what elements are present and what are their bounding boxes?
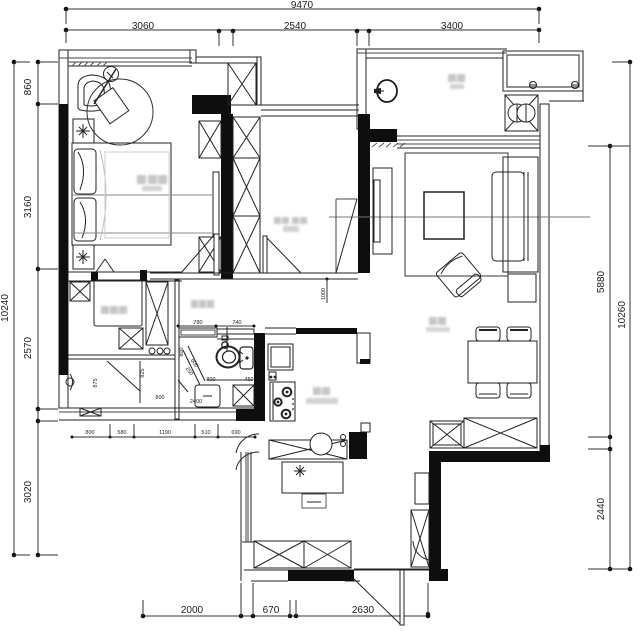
svg-text:2400: 2400 <box>190 399 202 405</box>
svg-text:5880: 5880 <box>596 270 607 293</box>
svg-text:1000: 1000 <box>321 288 327 300</box>
svg-text:800: 800 <box>85 430 94 436</box>
svg-text:670: 670 <box>263 605 280 616</box>
svg-text:10240: 10240 <box>0 294 11 322</box>
svg-text:10260: 10260 <box>617 301 628 329</box>
svg-text:2630: 2630 <box>352 605 375 616</box>
svg-text:2570: 2570 <box>23 336 34 359</box>
svg-text:2540: 2540 <box>284 21 307 32</box>
svg-text:3020: 3020 <box>23 480 34 503</box>
svg-text:3400: 3400 <box>441 21 464 32</box>
svg-text:1190: 1190 <box>159 430 171 436</box>
svg-text:3060: 3060 <box>132 21 155 32</box>
svg-text:2000: 2000 <box>181 605 204 616</box>
svg-text:9470: 9470 <box>291 0 314 11</box>
svg-text:860: 860 <box>23 78 34 95</box>
svg-text:580: 580 <box>117 430 126 436</box>
svg-text:800: 800 <box>179 347 185 356</box>
svg-text:2440: 2440 <box>596 497 607 520</box>
svg-text:780: 780 <box>193 320 202 326</box>
svg-text:800: 800 <box>155 395 164 401</box>
svg-text:3160: 3160 <box>23 195 34 218</box>
svg-text:740: 740 <box>232 320 241 326</box>
svg-text:690: 690 <box>231 430 240 436</box>
svg-text:510: 510 <box>201 430 210 436</box>
svg-text:875: 875 <box>93 378 99 387</box>
svg-text:825: 825 <box>140 368 146 377</box>
